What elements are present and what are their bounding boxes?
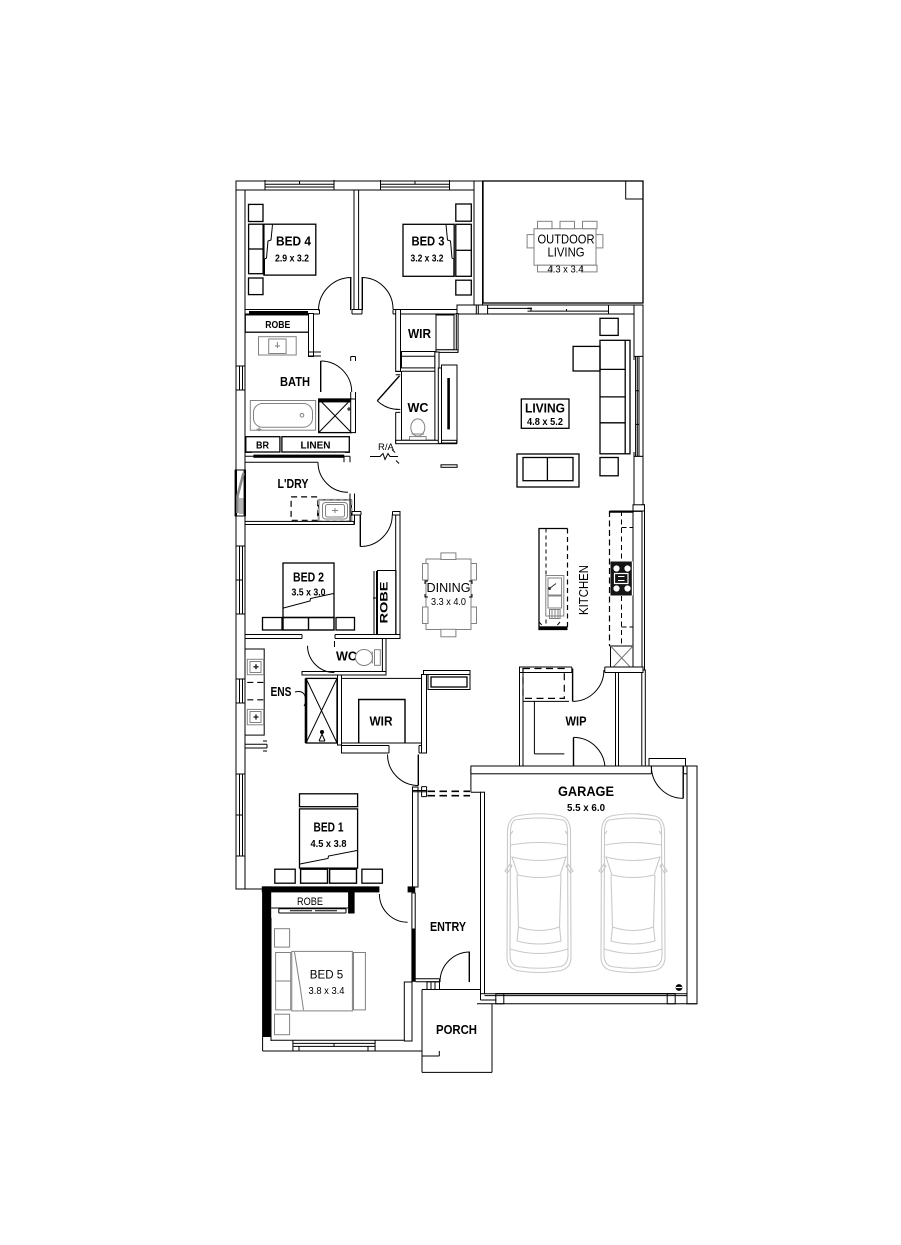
svg-text:LIVING: LIVING xyxy=(548,246,585,260)
svg-text:WC: WC xyxy=(408,400,430,415)
svg-text:ENTRY: ENTRY xyxy=(430,919,466,934)
svg-text:WIR: WIR xyxy=(408,326,432,341)
svg-text:DINING: DINING xyxy=(427,581,471,595)
svg-text:WC: WC xyxy=(336,649,358,664)
svg-text:GARAGE: GARAGE xyxy=(558,784,614,799)
svg-text:LINEN: LINEN xyxy=(301,440,331,451)
svg-text:3.3 x 4.0: 3.3 x 4.0 xyxy=(431,597,466,608)
svg-text:4.8 x 5.2: 4.8 x 5.2 xyxy=(527,417,563,428)
svg-text:ROBE: ROBE xyxy=(265,320,290,331)
svg-text:BED 2: BED 2 xyxy=(293,570,324,585)
svg-text:2.9 x 3.2: 2.9 x 3.2 xyxy=(275,254,309,265)
svg-text:BR: BR xyxy=(256,440,270,451)
svg-text:ROBE: ROBE xyxy=(297,896,323,908)
svg-text:KITCHEN: KITCHEN xyxy=(577,565,591,615)
svg-text:3.8 x 3.4: 3.8 x 3.4 xyxy=(309,986,345,997)
svg-text:3.5 x 3.0: 3.5 x 3.0 xyxy=(292,588,326,599)
svg-text:4.3 x 3.4: 4.3 x 3.4 xyxy=(548,265,584,276)
svg-text:BED 5: BED 5 xyxy=(310,970,344,982)
svg-text:L'DRY: L'DRY xyxy=(278,476,309,491)
svg-text:BED 4: BED 4 xyxy=(276,234,312,249)
svg-text:BED 3: BED 3 xyxy=(412,234,445,249)
svg-text:WIP: WIP xyxy=(566,714,587,729)
svg-text:4.5 x 3.8: 4.5 x 3.8 xyxy=(311,839,347,850)
svg-text:PORCH: PORCH xyxy=(436,1022,477,1037)
svg-text:BATH: BATH xyxy=(280,374,310,389)
svg-text:R/A: R/A xyxy=(378,442,395,453)
svg-text:ENS: ENS xyxy=(271,684,292,699)
svg-text:ROBE: ROBE xyxy=(379,582,391,624)
svg-text:OUTDOOR: OUTDOOR xyxy=(538,233,595,247)
svg-text:3.2 x 3.2: 3.2 x 3.2 xyxy=(411,254,444,265)
svg-text:LIVING: LIVING xyxy=(525,401,565,416)
svg-text:5.5 x 6.0: 5.5 x 6.0 xyxy=(567,803,605,814)
svg-text:WIR: WIR xyxy=(370,714,394,729)
svg-text:BED 1: BED 1 xyxy=(314,820,344,835)
